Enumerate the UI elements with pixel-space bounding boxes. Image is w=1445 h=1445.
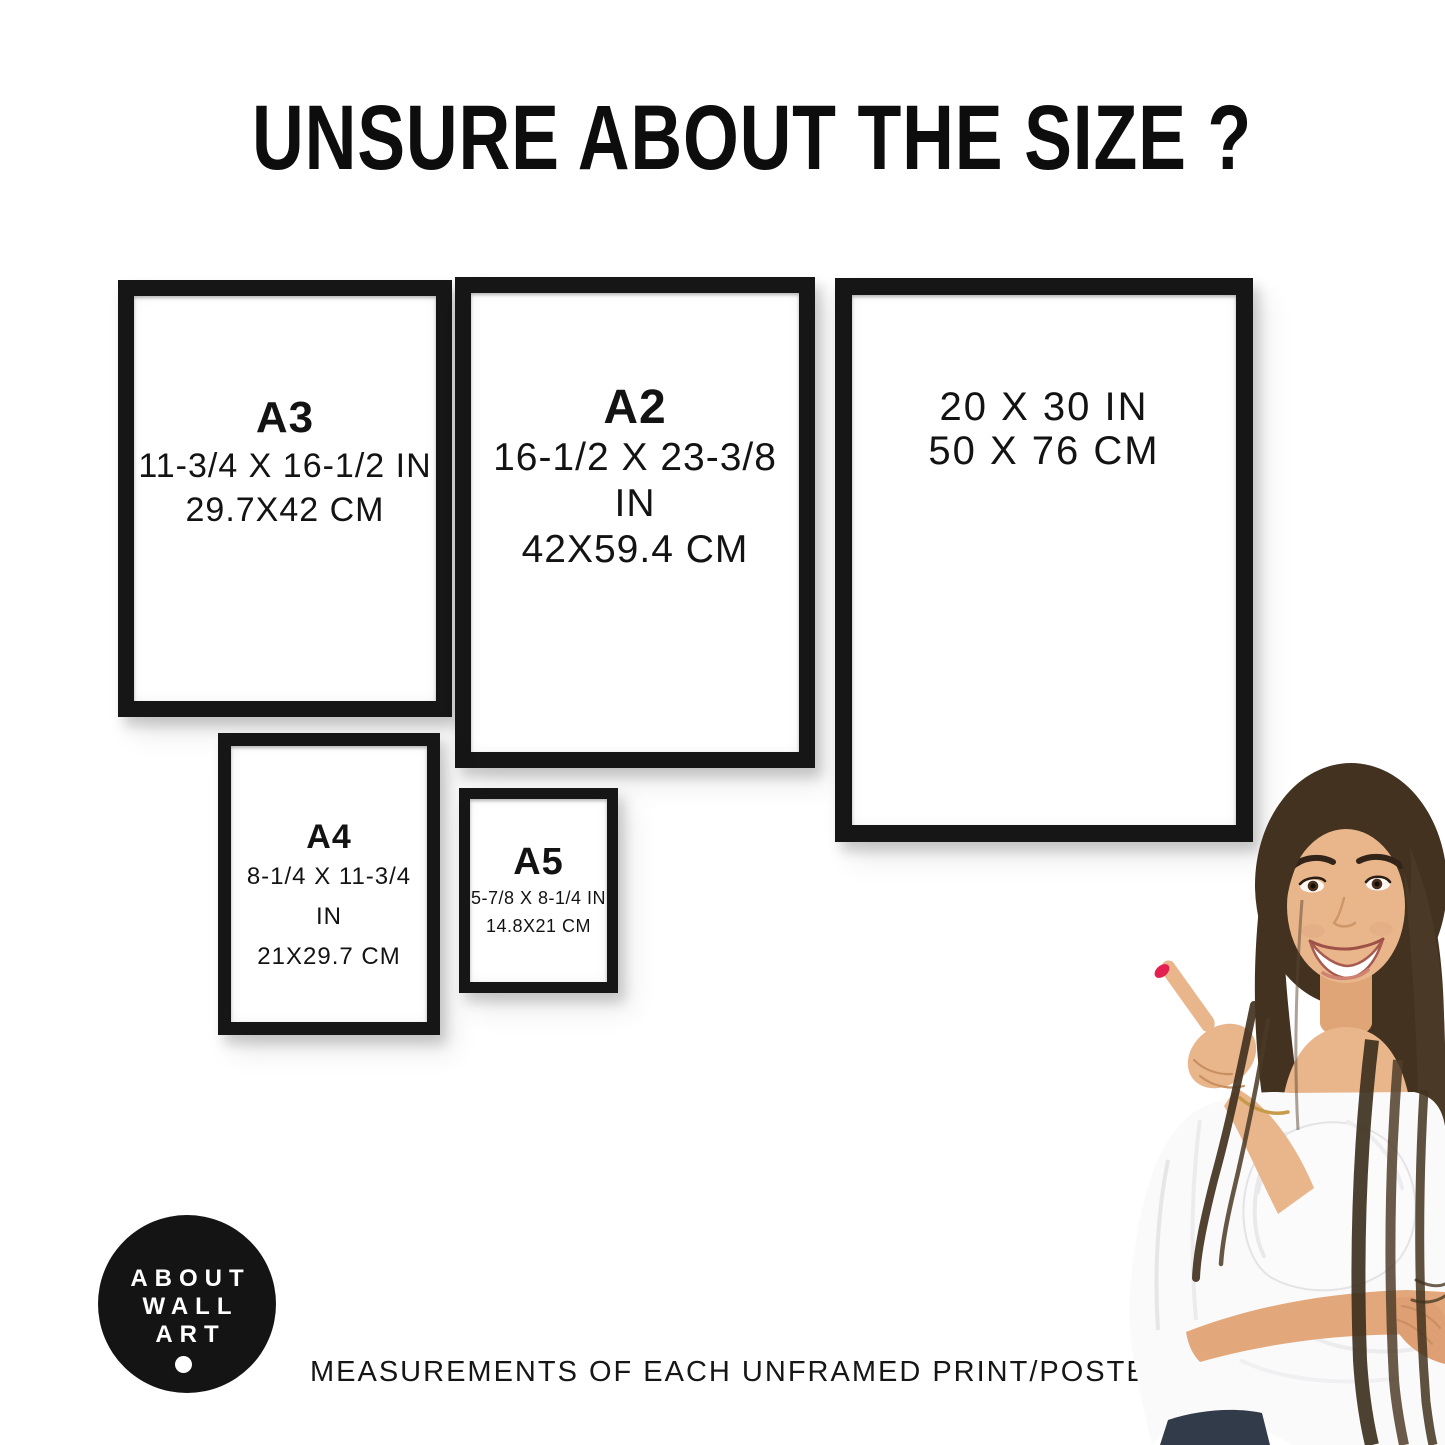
frame-20x30: 20 X 30 IN 50 X 76 CM — [835, 278, 1253, 842]
frame-a4-text: A4 8-1/4 X 11-3/4 IN 21X29.7 CM — [231, 817, 427, 977]
frame-a5: A5 5-7/8 X 8-1/4 IN 14.8X21 CM — [459, 788, 618, 993]
frame-a5-inches: 5-7/8 X 8-1/4 IN — [470, 884, 607, 912]
brand-logo-line1: ABOUT — [98, 1265, 276, 1293]
frame-20x30-cm: 50 X 76 CM — [852, 429, 1236, 473]
frame-20x30-text: 20 X 30 IN 50 X 76 CM — [852, 385, 1236, 473]
frame-a3: A3 11-3/4 X 16-1/2 IN 29.7X42 CM — [118, 280, 452, 717]
frame-a5-cm: 14.8X21 CM — [470, 912, 607, 940]
frame-a4-cm: 21X29.7 CM — [231, 937, 427, 977]
frame-a2-mat: A2 16-1/2 X 23-3/8 IN 42X59.4 CM — [471, 293, 799, 752]
frame-a4-inches: 8-1/4 X 11-3/4 IN — [231, 857, 427, 937]
frame-a4-mat: A4 8-1/4 X 11-3/4 IN 21X29.7 CM — [231, 746, 427, 1022]
brand-logo-line2: WALL — [98, 1293, 276, 1321]
frame-a2-inches: 16-1/2 X 23-3/8 IN — [471, 435, 799, 527]
page-title-text: UNSURE ABOUT THE SIZE ? — [252, 86, 1252, 191]
index-finger — [1161, 961, 1214, 1032]
logo-dot-icon — [175, 1356, 192, 1373]
frame-a3-mat: A3 11-3/4 X 16-1/2 IN 29.7X42 CM — [134, 296, 436, 701]
frame-a5-label: A5 — [470, 840, 607, 884]
frame-a2-label: A2 — [471, 381, 799, 435]
brand-logo-text: ABOUT WALL ART — [98, 1265, 276, 1349]
measurements-caption: MEASUREMENTS OF EACH UNFRAMED PRINT/POST… — [310, 1356, 1035, 1389]
frame-a4: A4 8-1/4 X 11-3/4 IN 21X29.7 CM — [218, 733, 440, 1035]
frame-a3-inches: 11-3/4 X 16-1/2 IN — [134, 444, 436, 488]
frame-20x30-mat: 20 X 30 IN 50 X 76 CM — [852, 295, 1236, 825]
frame-a4-label: A4 — [231, 817, 427, 857]
frame-a2-text: A2 16-1/2 X 23-3/8 IN 42X59.4 CM — [471, 381, 799, 573]
model-photo — [1100, 760, 1445, 1445]
page-title: UNSURE ABOUT THE SIZE ? — [30, 86, 1445, 191]
frame-a2-cm: 42X59.4 CM — [471, 527, 799, 573]
frame-a3-cm: 29.7X42 CM — [134, 488, 436, 532]
frame-a3-label: A3 — [134, 392, 436, 444]
size-guide-infographic: UNSURE ABOUT THE SIZE ? A3 11-3/4 X 16-1… — [0, 0, 1445, 1445]
frame-20x30-inches: 20 X 30 IN — [852, 385, 1236, 429]
frame-a5-mat: A5 5-7/8 X 8-1/4 IN 14.8X21 CM — [470, 799, 607, 982]
frame-a5-text: A5 5-7/8 X 8-1/4 IN 14.8X21 CM — [470, 840, 607, 940]
brand-logo: ABOUT WALL ART — [98, 1215, 276, 1393]
brand-logo-line3: ART — [98, 1321, 276, 1349]
frame-a3-text: A3 11-3/4 X 16-1/2 IN 29.7X42 CM — [134, 392, 436, 532]
frame-a2: A2 16-1/2 X 23-3/8 IN 42X59.4 CM — [455, 277, 815, 768]
